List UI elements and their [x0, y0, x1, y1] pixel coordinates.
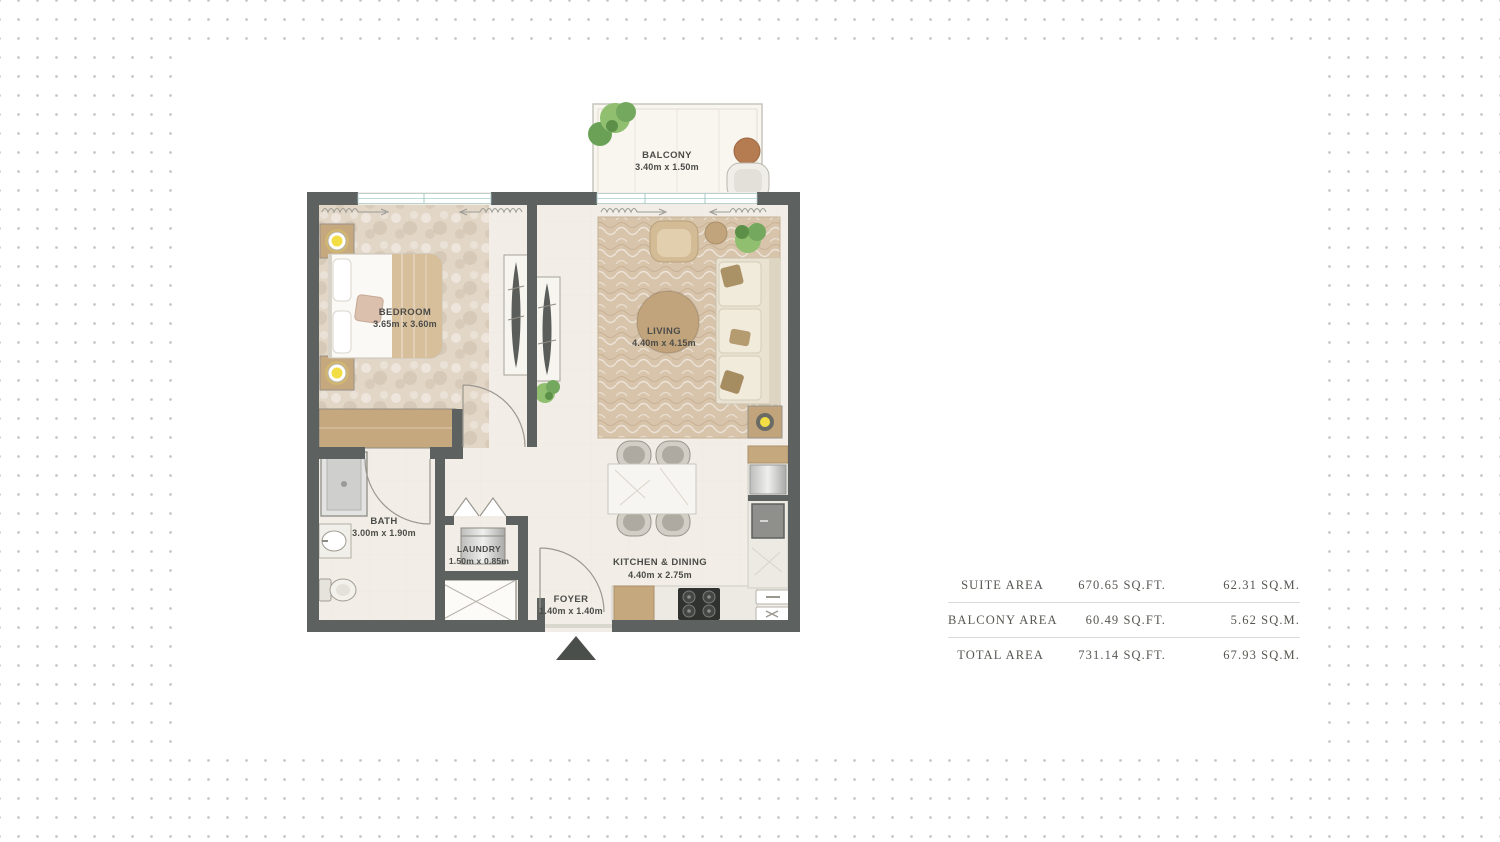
shaft-box: [436, 580, 516, 623]
bed: [328, 254, 442, 358]
room-label-balcony: BALCONY: [642, 150, 692, 161]
bath-sink-icon: [319, 524, 351, 558]
table-row: TOTAL AREA 731.14 SQ.FT. 67.93 SQ.M.: [948, 638, 1300, 672]
floorplan-drawing: BALCONY 3.40m x 1.50m: [0, 0, 1500, 842]
shower-icon: [321, 452, 367, 516]
living-room: LIVING 4.40m x 4.15m: [598, 217, 782, 438]
room-dims-bedroom: 3.65m x 3.60m: [373, 319, 437, 329]
page-background: BALCONY 3.40m x 1.50m: [0, 0, 1500, 842]
area-label: SUITE AREA: [948, 578, 1044, 593]
room-label-bath: BATH: [370, 516, 397, 527]
table-row: SUITE AREA 670.65 SQ.FT. 62.31 SQ.M.: [948, 568, 1300, 602]
dining-table: [608, 464, 696, 514]
balcony-table: [734, 138, 760, 164]
nightstand-lamp-icon: [320, 356, 354, 390]
room-label-laundry: LAUNDRY: [457, 544, 501, 554]
bedroom-window-icon: [358, 194, 491, 204]
area-sqm: 62.31 SQ.M.: [1166, 578, 1300, 593]
area-label: TOTAL AREA: [948, 648, 1044, 663]
area-sqm: 67.93 SQ.M.: [1166, 648, 1300, 663]
side-table: [705, 222, 727, 244]
area-sqft: 670.65 SQ.FT.: [1044, 578, 1166, 593]
stove-icon: [678, 588, 720, 620]
room-dims-bath: 3.00m x 1.90m: [352, 528, 416, 538]
balcony: BALCONY 3.40m x 1.50m: [588, 102, 769, 200]
toilet-icon: [319, 579, 356, 601]
area-table: SUITE AREA 670.65 SQ.FT. 62.31 SQ.M. BAL…: [948, 568, 1300, 672]
room-label-foyer: FOYER: [554, 594, 589, 605]
room-label-bedroom: BEDROOM: [379, 307, 431, 318]
balcony-slider-icon: [597, 194, 757, 204]
fridge-icon: [750, 465, 786, 494]
room-label-kitchen: KITCHEN & DINING: [613, 557, 707, 568]
room-dims-kitchen: 4.40m x 2.75m: [628, 570, 692, 580]
nightstand-lamp-icon: [320, 224, 354, 258]
area-sqft: 731.14 SQ.FT.: [1044, 648, 1166, 663]
room-dims-balcony: 3.40m x 1.50m: [635, 162, 699, 172]
table-row: BALCONY AREA 60.49 SQ.FT. 5.62 SQ.M.: [948, 603, 1300, 637]
area-label: BALCONY AREA: [948, 613, 1044, 628]
entrance-arrow-icon: [556, 636, 596, 660]
room-label-living: LIVING: [647, 326, 681, 337]
entry-threshold: [545, 624, 612, 628]
kitchen-sink-icon: [752, 504, 784, 538]
area-sqft: 60.49 SQ.FT.: [1044, 613, 1166, 628]
area-sqm: 5.62 SQ.M.: [1166, 613, 1300, 628]
kitchen-cabinet: [614, 586, 654, 621]
sofa: [716, 258, 780, 404]
room-dims-living: 4.40m x 4.15m: [632, 338, 696, 348]
armchair: [650, 221, 698, 262]
floor-lamp-icon: [748, 406, 782, 438]
room-dims-laundry: 1.50m x 0.85m: [449, 556, 509, 566]
room-dims-foyer: 1.40m x 1.40m: [539, 606, 603, 616]
